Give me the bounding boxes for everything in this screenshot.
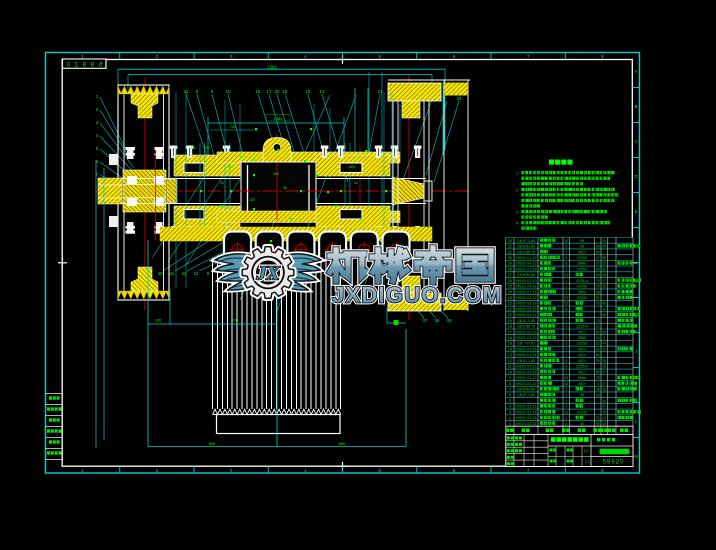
svg-text:83: 83 [596,267,600,271]
svg-text:40Cr: 40Cr [578,359,586,363]
svg-text:28: 28 [508,267,512,271]
svg-text:59: 59 [602,256,606,260]
svg-text:27: 27 [508,273,512,277]
svg-text:55: 55 [602,273,606,277]
svg-text:120: 120 [249,198,255,202]
svg-text:2.: 2. [516,187,519,192]
svg-text:2: 2 [565,325,567,329]
svg-text:27: 27 [596,262,600,266]
svg-text:40Cr: 40Cr [578,370,586,374]
svg-text:3: 3 [230,54,233,59]
svg-text:1: 1 [565,319,567,323]
svg-text:20: 20 [275,89,280,94]
svg-text:12: 12 [564,302,568,306]
svg-text:2362: 2362 [267,65,277,70]
svg-text:2: 2 [565,336,567,340]
svg-text:32: 32 [184,89,189,94]
svg-text:4: 4 [597,382,599,386]
svg-text:84: 84 [354,181,358,185]
svg-text:84: 84 [220,181,224,185]
svg-text:59920-01-19: 59920-01-19 [516,256,537,260]
svg-text:59920-03-12: 59920-03-12 [516,376,537,380]
svg-text:59920-01-23: 59920-01-23 [516,267,537,271]
svg-text:11: 11 [194,271,199,276]
svg-text:8: 8 [565,256,567,260]
svg-text:2: 2 [565,330,567,334]
svg-text:11: 11 [508,365,512,369]
svg-text:13: 13 [602,348,606,352]
svg-text:1: 1 [565,399,567,403]
svg-text:2: 2 [565,267,567,271]
svg-text:2: 2 [156,468,159,473]
svg-text:15: 15 [602,285,606,289]
svg-text:95: 95 [596,422,600,426]
svg-text:59920-01-22: 59920-01-22 [516,313,537,317]
svg-text:82: 82 [596,353,600,357]
svg-text:32: 32 [508,245,512,249]
svg-text:3.: 3. [516,209,519,214]
svg-text:A: A [635,69,638,74]
svg-text:40Cr: 40Cr [578,382,586,386]
svg-text:964: 964 [273,172,279,176]
svg-text:850: 850 [209,441,216,446]
svg-text:12: 12 [564,296,568,300]
svg-text:45: 45 [580,422,584,426]
svg-text:1: 1 [81,54,84,59]
svg-text:59920-02-16: 59920-02-16 [516,382,537,386]
svg-text:41: 41 [596,348,600,352]
svg-text:24: 24 [596,393,600,397]
svg-text:JXDIGUO.COM: JXDIGUO.COM [332,283,502,308]
svg-text:4: 4 [304,468,307,473]
svg-text:JX: JX [255,263,280,285]
svg-text:1: 1 [565,290,567,294]
svg-text:1: 1 [565,388,567,392]
svg-text:12: 12 [564,376,568,380]
svg-text:GB 5782-86: GB 5782-86 [517,388,535,392]
svg-text:4: 4 [603,336,605,340]
svg-text:16: 16 [256,89,261,94]
svg-text:59920-01-18: 59920-01-18 [516,353,537,357]
svg-text:1.: 1. [516,171,519,176]
svg-text:2: 2 [565,405,567,409]
svg-text:20: 20 [508,313,512,317]
svg-text:29: 29 [596,376,600,380]
svg-text:59920-04-21: 59920-04-21 [516,285,537,289]
svg-text:14: 14 [508,348,512,352]
svg-text:45: 45 [580,245,584,249]
svg-text:245: 245 [155,319,161,323]
svg-text:34: 34 [457,96,462,101]
svg-text:59920-04-12: 59920-04-12 [516,296,537,300]
svg-text:5: 5 [509,399,511,403]
svg-text:65Mn: 65Mn [578,376,587,380]
svg-text:GB 5782-86: GB 5782-86 [517,245,535,249]
svg-text:15: 15 [602,410,606,414]
svg-text:38: 38 [596,388,600,392]
svg-text:16: 16 [508,336,512,340]
svg-text:ZG310: ZG310 [577,342,587,346]
svg-text:7: 7 [527,468,530,473]
svg-text:12: 12 [564,382,568,386]
svg-text:GB 5782-86: GB 5782-86 [517,273,535,277]
svg-text:Q235-A: Q235-A [576,279,588,283]
svg-text:8: 8 [509,382,511,386]
svg-text:48: 48 [596,290,600,294]
svg-text:47: 47 [602,342,606,346]
svg-text:41: 41 [170,271,175,276]
svg-text:1:2: 1:2 [584,449,589,453]
svg-text:4.: 4. [516,221,519,226]
svg-text:20: 20 [602,239,606,243]
svg-text:65Mn: 65Mn [578,336,587,340]
svg-text:45: 45 [580,393,584,397]
svg-text:2: 2 [156,54,159,59]
svg-text:1: 1 [509,422,511,426]
svg-text:17: 17 [508,330,512,334]
svg-text:9: 9 [603,307,605,311]
svg-text:59920-03-29: 59920-03-29 [516,348,537,352]
svg-text:45: 45 [580,239,584,243]
svg-text:25: 25 [596,285,600,289]
svg-text:14: 14 [602,399,606,403]
svg-text:59920-03-15: 59920-03-15 [516,405,537,409]
svg-text:59920-03-20: 59920-03-20 [516,307,537,311]
svg-text:GB 1096-79: GB 1096-79 [517,250,535,254]
svg-text:10: 10 [226,89,231,94]
svg-text:24: 24 [602,245,606,249]
svg-text:45: 45 [602,302,606,306]
svg-text:GB 97.1-85: GB 97.1-85 [517,393,535,397]
svg-text:8: 8 [565,307,567,311]
svg-text:33: 33 [508,239,512,243]
svg-text:5: 5 [378,54,381,59]
svg-text:47: 47 [602,405,606,409]
svg-text:59920-01-10: 59920-01-10 [516,279,537,283]
svg-text:17: 17 [267,89,272,94]
svg-text:390: 390 [204,146,210,150]
svg-text:60: 60 [602,313,606,317]
svg-text:C: C [634,139,637,144]
svg-text:9: 9 [509,376,511,380]
svg-text:6: 6 [565,422,567,426]
svg-text:22: 22 [508,302,512,306]
svg-text:20: 20 [602,359,606,363]
svg-text:GB 97.1-85: GB 97.1-85 [517,359,535,363]
svg-text:13: 13 [508,353,512,357]
svg-text:40Cr: 40Cr [578,348,586,352]
svg-text:1 2: 1 2 [585,460,590,464]
svg-text:4: 4 [304,54,307,59]
svg-text:34: 34 [602,422,606,426]
svg-text:40Cr: 40Cr [578,250,586,254]
svg-text:7: 7 [509,388,511,392]
svg-text:40Cr: 40Cr [578,353,586,357]
svg-text:30: 30 [508,256,512,260]
svg-text:Q235-A: Q235-A [576,365,588,369]
svg-text:2: 2 [565,348,567,352]
svg-text:HT200: HT200 [577,285,587,289]
svg-text:GB 97.1-85: GB 97.1-85 [517,319,535,323]
svg-text:52: 52 [602,262,606,266]
svg-text:59920-01-16: 59920-01-16 [516,410,537,414]
svg-text:GB 70-85: GB 70-85 [517,342,535,346]
svg-text:59920-03-18: 59920-03-18 [516,302,537,306]
svg-text:1: 1 [565,393,567,397]
svg-text:95: 95 [596,302,600,306]
svg-text:20: 20 [602,267,606,271]
svg-text:47: 47 [602,382,606,386]
svg-text:31: 31 [508,250,512,254]
svg-text:40Cr: 40Cr [578,330,586,334]
svg-text:1: 1 [565,250,567,254]
svg-text:5: 5 [378,468,381,473]
svg-text:59920-04-29: 59920-04-29 [516,370,537,374]
svg-text:12: 12 [564,239,568,243]
svg-text:22: 22 [596,342,600,346]
svg-text:59920: 59920 [603,460,625,466]
svg-text:59920-02-29: 59920-02-29 [516,330,537,334]
svg-text:180: 180 [250,158,256,162]
svg-text:2: 2 [565,370,567,374]
svg-text:12: 12 [564,410,568,414]
svg-text:GB 1096-79: GB 1096-79 [517,325,535,329]
svg-text:59920-01-15: 59920-01-15 [516,290,537,294]
svg-text:1380: 1380 [274,116,284,121]
svg-text:3: 3 [230,468,233,473]
svg-text:38: 38 [435,318,440,323]
svg-text:Q235-A: Q235-A [576,325,588,329]
svg-text:24: 24 [508,290,512,294]
svg-text:8: 8 [601,468,604,473]
svg-text:18: 18 [508,325,512,329]
svg-text:GB 97.1-85: GB 97.1-85 [517,239,535,243]
svg-text:15: 15 [508,342,512,346]
svg-text:6: 6 [509,393,511,397]
svg-text:65Mn: 65Mn [578,262,587,266]
svg-text:17: 17 [602,279,606,283]
svg-text:13: 13 [602,416,606,420]
svg-text:26: 26 [508,279,512,283]
svg-text:870: 870 [232,319,238,323]
svg-text:2: 2 [565,342,567,346]
svg-text:700: 700 [230,125,236,129]
svg-text:M24: M24 [227,165,233,169]
svg-text:2: 2 [509,416,511,420]
svg-text:6: 6 [453,468,456,473]
svg-text:54: 54 [602,330,606,334]
svg-text:93: 93 [596,273,600,277]
svg-text:40: 40 [158,271,163,276]
svg-text:7: 7 [527,54,530,59]
svg-text:4: 4 [509,405,511,409]
svg-text:ZG310: ZG310 [577,296,587,300]
svg-text:21: 21 [596,416,600,420]
svg-text:65Mn: 65Mn [578,290,587,294]
svg-text:22: 22 [596,325,600,329]
svg-text:350: 350 [190,146,196,150]
svg-text:HT200: HT200 [577,256,587,260]
svg-text:M: M [634,454,638,459]
svg-text:8: 8 [601,54,604,59]
svg-text:850: 850 [339,441,346,446]
svg-text:1: 1 [565,353,567,357]
svg-text:27: 27 [602,370,606,374]
svg-text:25: 25 [508,285,512,289]
svg-text:2: 2 [565,313,567,317]
svg-text:75: 75 [596,279,600,283]
svg-text:18: 18 [283,89,288,94]
svg-text:M24: M24 [349,165,355,169]
svg-text:59920-02-15: 59920-02-15 [516,416,537,420]
svg-text:37: 37 [596,256,600,260]
svg-text:55: 55 [596,250,600,254]
svg-text:12: 12 [508,359,512,363]
svg-text:ZG310: ZG310 [577,410,587,414]
svg-text:6: 6 [453,54,456,59]
svg-text:59920-04-29: 59920-04-29 [516,336,537,340]
svg-text:J: J [635,349,637,354]
svg-text:3: 3 [509,410,511,414]
svg-text:93: 93 [596,336,600,340]
svg-text:29: 29 [596,359,600,363]
svg-text:29: 29 [508,262,512,266]
svg-text:59920-02-22: 59920-02-22 [516,422,537,426]
svg-text:E: E [635,209,638,214]
svg-text:2: 2 [565,416,567,420]
svg-text:59920-04-23: 59920-04-23 [516,262,537,266]
svg-text:14: 14 [320,89,325,94]
svg-text:85: 85 [283,186,287,190]
svg-text:81: 81 [596,296,600,300]
svg-text:B: B [635,104,638,109]
svg-text:68: 68 [596,245,600,249]
svg-text:4: 4 [565,365,567,369]
svg-text:39: 39 [447,318,452,323]
svg-text:19: 19 [508,319,512,323]
svg-text:53: 53 [602,365,606,369]
svg-text:23: 23 [508,296,512,300]
svg-text:1: 1 [565,285,567,289]
svg-text:2: 2 [565,245,567,249]
svg-text:10: 10 [508,370,512,374]
svg-text:59920-04-15: 59920-04-15 [516,365,537,369]
svg-text:37: 37 [423,318,428,323]
svg-text:19: 19 [306,89,311,94]
svg-text:6: 6 [565,359,567,363]
svg-text:1: 1 [81,468,84,473]
svg-text:73: 73 [596,319,600,323]
svg-text:D: D [634,174,637,179]
svg-text:HT200: HT200 [577,267,587,271]
svg-text:65: 65 [596,370,600,374]
svg-text:87: 87 [596,330,600,334]
svg-text:21: 21 [508,307,512,311]
svg-text:28: 28 [602,388,606,392]
svg-text:1: 1 [565,279,567,283]
svg-text:8: 8 [565,262,567,266]
svg-text:12: 12 [564,273,568,277]
